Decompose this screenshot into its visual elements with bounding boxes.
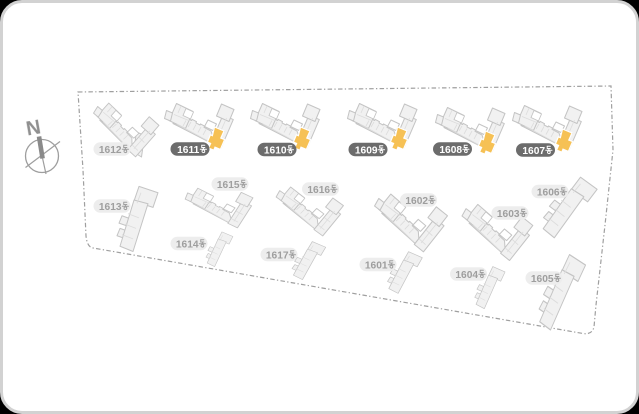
svg-text:1612: 1612 [99, 145, 122, 156]
svg-text:1605: 1605 [531, 274, 554, 285]
svg-text:1608: 1608 [439, 145, 462, 156]
svg-text:1616: 1616 [307, 185, 330, 196]
svg-text:1615: 1615 [217, 180, 240, 191]
svg-text:1613: 1613 [99, 202, 122, 213]
svg-text:1611: 1611 [177, 145, 199, 156]
svg-text:1607: 1607 [522, 146, 545, 157]
svg-text:1604: 1604 [455, 270, 478, 281]
svg-text:1602: 1602 [405, 196, 428, 207]
svg-text:1601: 1601 [365, 260, 388, 271]
svg-text:1603: 1603 [497, 209, 520, 220]
svg-text:1617: 1617 [266, 250, 289, 261]
svg-text:1614: 1614 [176, 239, 199, 250]
svg-text:1610: 1610 [264, 145, 287, 156]
svg-text:1606: 1606 [537, 187, 560, 198]
svg-text:1609: 1609 [355, 145, 378, 156]
